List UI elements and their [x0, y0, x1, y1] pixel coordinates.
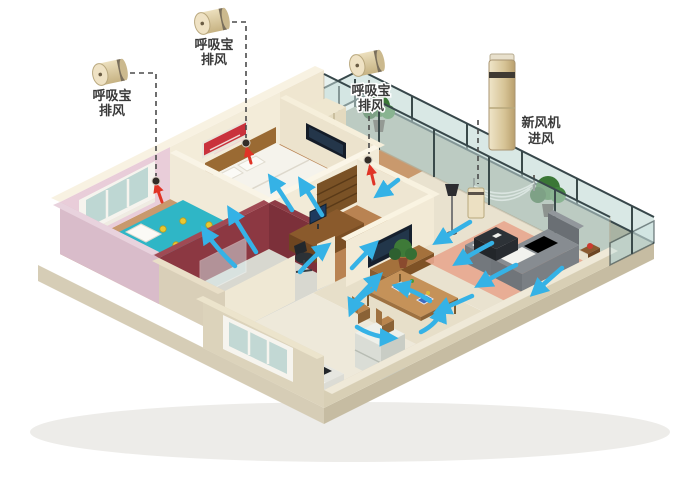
exhaust-unit-icon: [348, 49, 387, 78]
exhaust-unit-icon: [193, 7, 232, 36]
indoor-fresh-air-unit: [468, 188, 484, 218]
fresh-air-unit-icon: [489, 54, 515, 150]
red-book: [587, 243, 593, 249]
exhaust-label-1-line2: 排风: [99, 103, 125, 118]
isometric-apartment-scene: 呼吸宝 排风 呼吸宝 排风 呼吸宝 排风 新风机 进风: [0, 0, 700, 496]
fresh-air-label-line2: 进风: [528, 131, 554, 146]
exhaust-label-3-line1: 呼吸宝: [351, 83, 390, 98]
wall-vent-icon: [242, 139, 250, 147]
fresh-air-label-line1: 新风机: [521, 115, 560, 130]
wall-vent-icon: [364, 156, 372, 164]
floorplan-ventilation-diagram: 呼吸宝 排风 呼吸宝 排风 呼吸宝 排风 新风机 进风: [0, 0, 700, 496]
exhaust-label-1-line1: 呼吸宝: [92, 88, 131, 103]
exhaust-label-2-line2: 排风: [201, 52, 227, 67]
exhaust-label-2-line1: 呼吸宝: [194, 37, 233, 52]
wall-vent-icon: [152, 177, 160, 185]
exhaust-unit-icon: [91, 58, 130, 87]
exhaust-label-3-line2: 排风: [358, 98, 384, 113]
